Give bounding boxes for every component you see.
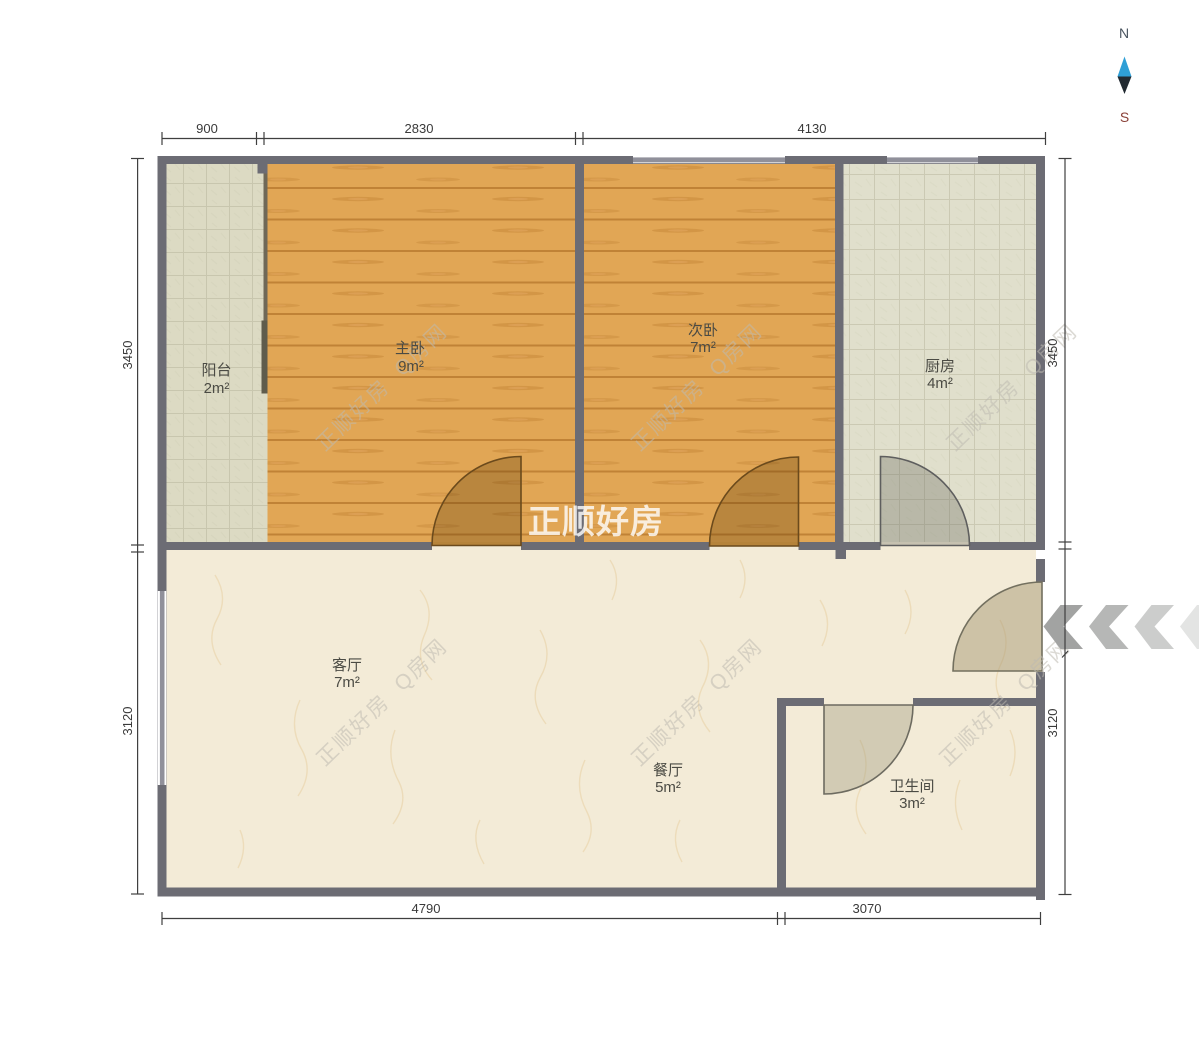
- svg-text:正顺好房: 正顺好房: [528, 503, 664, 540]
- svg-text:3070: 3070: [853, 901, 882, 916]
- svg-text:3120: 3120: [1045, 709, 1060, 738]
- svg-text:2m²: 2m²: [204, 380, 230, 397]
- svg-text:卫生间: 卫生间: [889, 778, 934, 795]
- svg-text:7m²: 7m²: [334, 674, 360, 691]
- svg-text:5m²: 5m²: [655, 779, 681, 796]
- svg-text:7m²: 7m²: [690, 339, 716, 356]
- svg-text:4m²: 4m²: [927, 375, 953, 392]
- svg-text:餐厅: 餐厅: [653, 762, 683, 779]
- svg-text:2830: 2830: [405, 121, 434, 136]
- svg-text:3120: 3120: [120, 707, 135, 736]
- svg-text:4130: 4130: [798, 121, 827, 136]
- svg-text:阳台: 阳台: [201, 362, 231, 379]
- svg-text:3450: 3450: [1045, 339, 1060, 368]
- svg-text:主卧: 主卧: [395, 340, 425, 357]
- svg-text:9m²: 9m²: [398, 358, 424, 375]
- svg-text:客厅: 客厅: [332, 657, 362, 674]
- svg-text:N: N: [1119, 25, 1129, 41]
- svg-text:900: 900: [196, 121, 218, 136]
- svg-text:S: S: [1120, 109, 1129, 125]
- svg-text:厨房: 厨房: [925, 358, 955, 375]
- svg-text:3450: 3450: [120, 341, 135, 370]
- svg-text:3m²: 3m²: [899, 795, 925, 812]
- svg-text:次卧: 次卧: [688, 322, 718, 339]
- svg-text:4790: 4790: [412, 901, 441, 916]
